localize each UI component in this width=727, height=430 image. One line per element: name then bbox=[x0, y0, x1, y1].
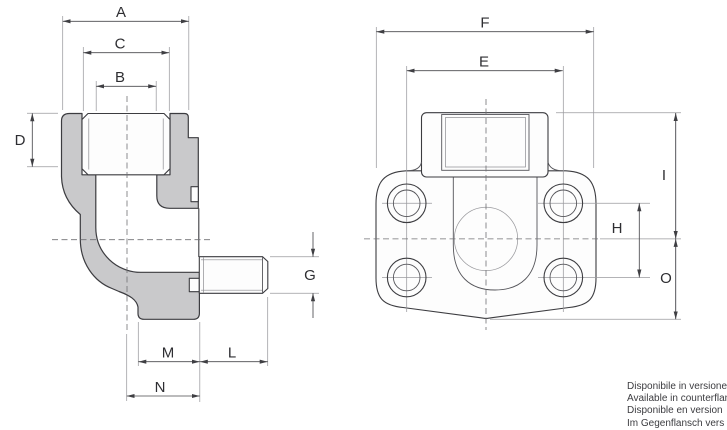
port-block-fillet-left bbox=[407, 162, 422, 171]
dim-label-i: I bbox=[662, 167, 666, 184]
dim-label-c: C bbox=[115, 36, 126, 53]
dim-label-l: L bbox=[228, 345, 236, 362]
counterbore-socket bbox=[82, 114, 170, 175]
dim-label-g: G bbox=[304, 267, 316, 284]
note-line-english: Available in counterflan bbox=[627, 393, 727, 405]
groove-upper bbox=[191, 187, 198, 202]
front-view: F E H I O bbox=[364, 15, 681, 331]
dim-label-a: A bbox=[116, 4, 126, 21]
dim-label-h: H bbox=[612, 220, 623, 237]
dim-label-o: O bbox=[660, 270, 672, 287]
side-section-view: A C B D G M L N bbox=[15, 4, 319, 402]
groove-lower bbox=[189, 278, 199, 291]
note-line-italian: Disponibile in versione bbox=[627, 381, 727, 393]
note-line-french: Disponible en version bbox=[627, 405, 727, 417]
dim-label-d: D bbox=[15, 132, 26, 149]
drawing-page: { "dims": { "side": { "A": "A", "B": "B"… bbox=[0, 0, 727, 427]
dim-label-f: F bbox=[480, 15, 489, 32]
technical-drawing: A C B D G M L N bbox=[0, 0, 727, 427]
note-line-german: Im Gegenflansch vers bbox=[627, 418, 727, 430]
port-block-fillet-right bbox=[548, 162, 563, 171]
dim-label-b: B bbox=[115, 69, 125, 86]
dim-label-n: N bbox=[155, 379, 166, 396]
availability-notes: Disponibile in versione Available in cou… bbox=[627, 381, 727, 430]
threaded-stud bbox=[199, 257, 267, 294]
dim-label-e: E bbox=[479, 54, 489, 71]
dim-label-m: M bbox=[162, 345, 175, 362]
